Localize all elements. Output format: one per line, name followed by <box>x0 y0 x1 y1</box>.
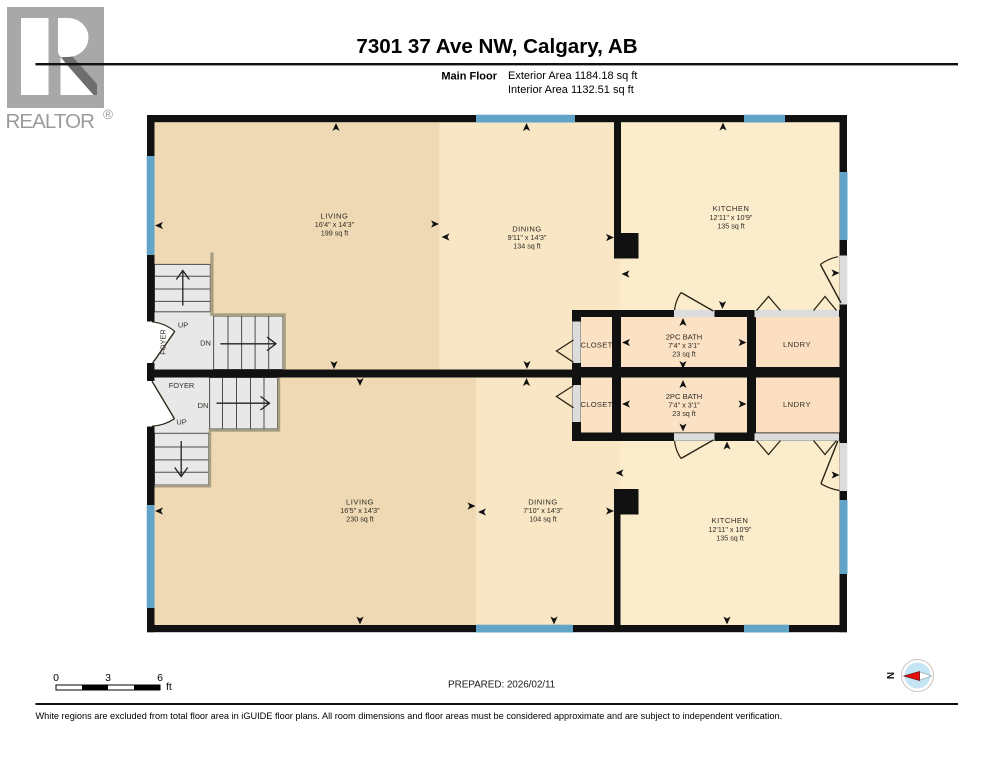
svg-text:LNDRY: LNDRY <box>783 340 811 349</box>
svg-text:KITCHEN: KITCHEN <box>712 516 749 525</box>
svg-text:FOYER: FOYER <box>159 329 168 354</box>
svg-text:REALTOR: REALTOR <box>6 110 96 133</box>
svg-text:UP: UP <box>178 321 188 330</box>
svg-text:White regions are excluded fro: White regions are excluded from total fl… <box>36 711 783 721</box>
svg-text:FOYER: FOYER <box>169 381 194 390</box>
svg-text:Main Floor: Main Floor <box>441 71 497 83</box>
svg-text:Exterior Area 1184.18 sq ft: Exterior Area 1184.18 sq ft <box>508 70 637 82</box>
svg-text:230 sq ft: 230 sq ft <box>346 515 374 524</box>
svg-text:23 sq ft: 23 sq ft <box>672 409 696 418</box>
svg-text:135 sq ft: 135 sq ft <box>716 534 744 543</box>
svg-text:CLOSET: CLOSET <box>580 341 612 350</box>
svg-text:23 sq ft: 23 sq ft <box>672 350 696 359</box>
svg-text:ft: ft <box>166 681 172 693</box>
svg-text:®: ® <box>103 107 113 122</box>
svg-text:PREPARED: 2026/02/11: PREPARED: 2026/02/11 <box>448 680 556 691</box>
svg-text:LNDRY: LNDRY <box>783 400 811 409</box>
svg-text:CLOSET: CLOSET <box>580 400 612 409</box>
svg-text:135 sq ft: 135 sq ft <box>717 222 745 231</box>
svg-text:7301 37 Ave NW, Calgary, AB: 7301 37 Ave NW, Calgary, AB <box>356 35 637 58</box>
svg-text:N: N <box>886 672 897 679</box>
svg-text:DN: DN <box>200 339 211 348</box>
svg-text:KITCHEN: KITCHEN <box>713 204 750 213</box>
svg-text:UP: UP <box>176 418 186 427</box>
svg-text:Interior Area 1132.51 sq ft: Interior Area 1132.51 sq ft <box>508 84 634 96</box>
svg-text:6: 6 <box>157 672 163 684</box>
svg-text:199 sq ft: 199 sq ft <box>321 229 349 238</box>
svg-text:0: 0 <box>53 672 59 684</box>
svg-text:3: 3 <box>105 672 111 684</box>
svg-text:104 sq ft: 104 sq ft <box>529 515 557 524</box>
svg-text:DN: DN <box>198 401 209 410</box>
svg-text:134 sq ft: 134 sq ft <box>513 242 541 251</box>
